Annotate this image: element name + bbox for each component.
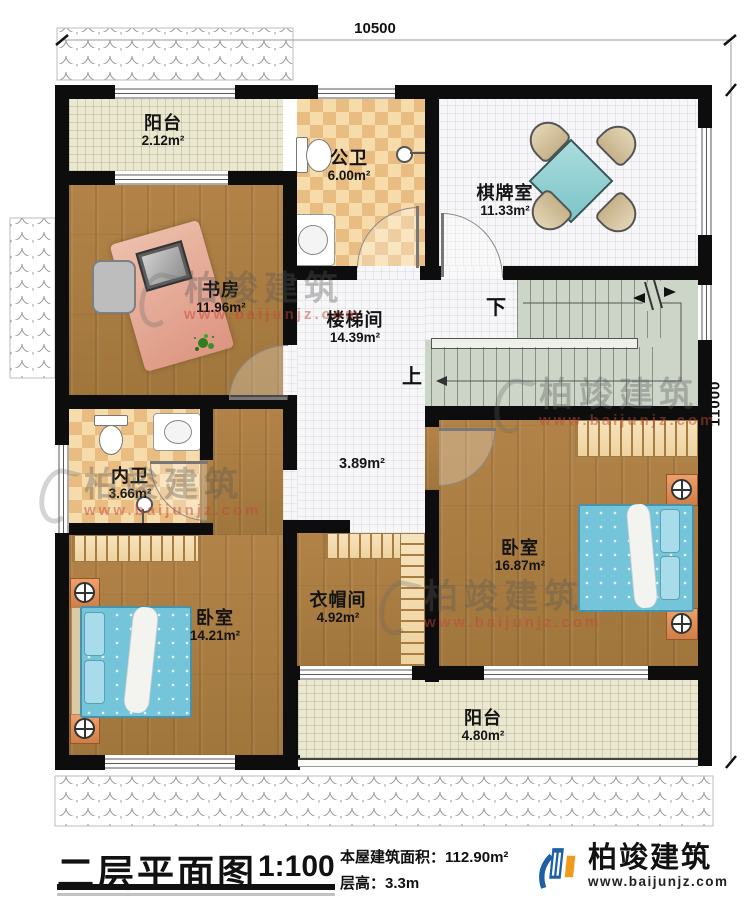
office-chair xyxy=(92,260,136,314)
shower-stem xyxy=(142,509,144,523)
window xyxy=(105,755,235,770)
door-panel xyxy=(229,397,287,400)
toilet-bowl xyxy=(99,425,123,455)
label-study: 书房11.96m² xyxy=(196,280,246,315)
title-underline xyxy=(57,884,335,890)
wall xyxy=(55,171,115,185)
window xyxy=(55,445,69,533)
window xyxy=(318,85,395,99)
door-gap xyxy=(357,266,420,280)
wall xyxy=(425,490,439,682)
wall xyxy=(283,400,297,470)
door-panel xyxy=(150,461,208,464)
label-hall-area: 3.89m² xyxy=(339,456,385,472)
wall xyxy=(283,520,350,533)
brand-url: www.baijunjz.com xyxy=(588,874,729,889)
nightstand xyxy=(666,608,698,640)
wall xyxy=(698,680,712,766)
pillow xyxy=(660,556,680,600)
wall xyxy=(420,266,441,280)
wall xyxy=(283,666,300,680)
wall xyxy=(283,185,297,345)
built-area-label: 本屋建筑面积： xyxy=(340,849,445,866)
balcony-parapet xyxy=(298,758,698,767)
dimension-top: 10500 xyxy=(330,20,420,37)
stair-up-label: 上 xyxy=(402,360,422,389)
floor-height-label: 层高： xyxy=(340,875,385,892)
label-bedroom-right: 卧室16.87m² xyxy=(495,538,545,573)
window xyxy=(115,171,228,185)
staircase xyxy=(425,277,698,406)
stair-lower-flight xyxy=(431,347,663,406)
window xyxy=(698,285,712,340)
wall xyxy=(503,266,698,280)
window xyxy=(115,85,235,99)
stair-upper-flight xyxy=(517,277,663,338)
nightstand xyxy=(70,578,100,608)
window xyxy=(698,128,712,235)
closet xyxy=(325,533,402,559)
label-game-room: 棋牌室11.33m² xyxy=(477,183,534,218)
label-bedroom-left: 卧室14.21m² xyxy=(190,608,240,643)
label-cloakroom: 衣帽间4.92m² xyxy=(310,590,367,625)
brand-logo: 柏竣建筑 www.baijunjz.com xyxy=(536,843,729,893)
label-balcony-bottom: 阳台4.80m² xyxy=(462,708,505,743)
door-panel xyxy=(439,428,496,431)
wall xyxy=(69,523,200,535)
pillow xyxy=(84,612,105,656)
door-panel xyxy=(441,213,444,277)
built-area-line: 本屋建筑面积：112.90m² xyxy=(340,846,508,867)
label-inner-bath: 内卫3.66m² xyxy=(109,466,152,501)
pillow xyxy=(84,660,105,704)
stair-down-label: 下 xyxy=(486,291,506,320)
floor-plan: 下 上 xyxy=(0,0,750,904)
wall xyxy=(395,85,712,99)
wall xyxy=(200,409,213,460)
wall xyxy=(412,666,484,680)
sink xyxy=(153,413,201,451)
wall xyxy=(228,171,290,185)
title-underline-2 xyxy=(57,893,335,896)
nightstand xyxy=(70,714,100,744)
wall xyxy=(200,523,213,535)
label-balcony-top: 阳台2.12m² xyxy=(142,113,185,148)
sink xyxy=(291,214,335,266)
window xyxy=(484,666,648,680)
wall xyxy=(648,666,712,680)
window xyxy=(300,666,412,680)
wall xyxy=(55,533,69,770)
door-gap xyxy=(283,470,297,520)
plan-scale: 1:100 xyxy=(258,850,335,884)
door-gap xyxy=(425,427,439,490)
floor-height-line: 层高：3.3m xyxy=(340,872,419,893)
wall xyxy=(235,85,318,99)
wall xyxy=(425,406,712,420)
dimension-right: 11000 xyxy=(706,381,723,427)
wall xyxy=(55,755,105,770)
wall xyxy=(55,85,69,445)
pillow xyxy=(660,509,680,553)
wall xyxy=(425,99,439,266)
wall xyxy=(425,406,439,427)
built-area-value: 112.90m² xyxy=(445,849,508,866)
floor-height-value: 3.3m xyxy=(385,875,419,892)
brand-logo-icon xyxy=(536,843,582,893)
closet xyxy=(400,533,425,667)
plant xyxy=(198,338,208,348)
nightstand xyxy=(666,474,698,506)
shower-head xyxy=(396,146,413,163)
wall xyxy=(283,533,297,757)
brand-name: 柏竣建筑 xyxy=(588,842,712,874)
label-stair-hall: 楼梯间14.39m² xyxy=(327,310,384,345)
closet xyxy=(72,535,199,562)
door-panel xyxy=(416,206,419,268)
shower-stem xyxy=(410,152,425,154)
wardrobe xyxy=(575,420,700,457)
corridor-floor xyxy=(213,409,283,535)
label-public-bath: 公卫6.00m² xyxy=(328,148,371,183)
